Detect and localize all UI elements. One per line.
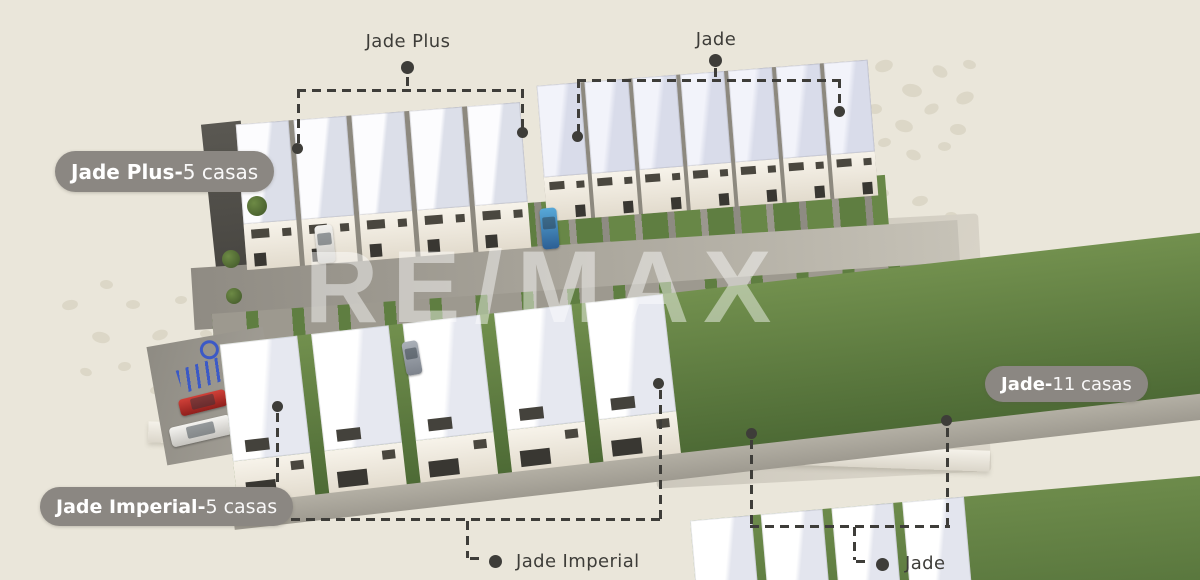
- connector-line: [853, 527, 856, 560]
- connector-dot: [709, 54, 722, 67]
- decorative-dot: [79, 367, 93, 378]
- badge-jade: Jade-11 casas: [985, 366, 1148, 402]
- decorative-dot: [901, 82, 923, 98]
- bracket-line: [659, 390, 662, 520]
- garage-door: [254, 253, 267, 267]
- badge-count: 5 casas: [205, 496, 277, 518]
- decorative-dot: [911, 194, 929, 207]
- garage-door: [814, 186, 825, 199]
- connector-dot: [834, 106, 845, 117]
- garage-door: [766, 189, 777, 202]
- decorative-dot: [118, 361, 132, 371]
- garage-door: [862, 182, 873, 195]
- bracket-line: [577, 79, 842, 82]
- callout-label-jade: Jade: [666, 29, 766, 50]
- badge-name: Jade Plus-: [71, 160, 183, 184]
- garage-door: [575, 204, 586, 217]
- connector-line: [856, 560, 871, 563]
- badge-name: Jade Imperial-: [56, 496, 205, 518]
- decorative-dot: [950, 123, 967, 135]
- house-roof: [351, 111, 412, 215]
- garage-door: [719, 193, 730, 206]
- decorative-dot: [151, 328, 169, 342]
- house: [831, 503, 907, 580]
- house: [761, 509, 837, 580]
- window: [863, 158, 872, 166]
- window: [382, 449, 396, 459]
- house-facade: [592, 170, 639, 217]
- window: [815, 162, 824, 170]
- badge-name: Jade-: [1001, 374, 1052, 395]
- house-facade: [507, 422, 589, 475]
- house-facade: [640, 167, 687, 214]
- connector-dot: [401, 61, 414, 74]
- decorative-dot: [905, 148, 923, 163]
- garage-door: [623, 201, 634, 214]
- window: [672, 173, 681, 181]
- window: [482, 210, 501, 220]
- tree: [222, 250, 240, 268]
- window: [645, 173, 661, 182]
- window: [290, 460, 304, 470]
- window: [720, 169, 729, 177]
- bracket-line: [577, 79, 580, 132]
- house-roof: [831, 503, 904, 580]
- connector-dot: [272, 401, 283, 412]
- house-roof: [776, 64, 827, 159]
- house-roof: [467, 102, 528, 206]
- connector-dot: [876, 558, 889, 571]
- decorative-dot: [894, 118, 914, 134]
- callout-label-jade-imperial: Jade Imperial: [516, 551, 640, 572]
- badge-jade-plus: Jade Plus-5 casas: [55, 151, 274, 192]
- window: [741, 166, 757, 175]
- marketing-render-page: RE/MAX Jade Plus Jade Jade Imperial Jade…: [0, 0, 1200, 580]
- connector-line: [470, 557, 485, 560]
- house-roof: [761, 509, 834, 580]
- house-facade: [735, 159, 782, 206]
- connector-dot: [941, 415, 952, 426]
- white-car: [168, 414, 233, 447]
- bracket-line: [946, 428, 949, 527]
- house: [728, 67, 783, 206]
- badge-count: 11 casas: [1052, 374, 1131, 395]
- decorative-dot: [923, 101, 941, 116]
- house-roof: [537, 82, 588, 177]
- tree: [247, 196, 267, 216]
- badge-jade-imperial: Jade Imperial-5 casas: [40, 487, 293, 526]
- house: [537, 82, 592, 221]
- decorative-dot: [954, 89, 975, 106]
- decorative-dot: [962, 59, 977, 71]
- bracket-line: [750, 440, 753, 528]
- window: [788, 162, 804, 171]
- tree: [226, 288, 242, 304]
- connector-line: [466, 521, 469, 558]
- connector-dot: [489, 555, 502, 568]
- house-facade: [416, 432, 498, 485]
- bracket-line: [521, 89, 524, 129]
- house: [632, 75, 687, 214]
- decorative-dot: [91, 330, 111, 345]
- garage-door: [428, 458, 460, 477]
- remax-watermark: RE/MAX: [275, 222, 815, 352]
- bracket-line: [838, 79, 841, 108]
- decorative-dot: [930, 63, 949, 81]
- bracket-line: [297, 89, 524, 92]
- house-facade: [599, 411, 681, 464]
- callout-label-jade-bottom: Jade: [905, 553, 945, 574]
- decorative-dot: [126, 300, 140, 309]
- connector-dot: [292, 143, 303, 154]
- garage-door: [337, 469, 369, 488]
- garage-door: [520, 448, 552, 467]
- connector-dot: [653, 378, 664, 389]
- house: [220, 336, 316, 506]
- decorative-dot: [175, 295, 188, 304]
- window: [768, 165, 777, 173]
- window: [549, 181, 565, 190]
- decorative-dot: [938, 142, 951, 151]
- house: [584, 79, 639, 218]
- house-roof: [409, 107, 470, 211]
- connector-dot: [572, 131, 583, 142]
- callout-label-jade-plus: Jade Plus: [340, 31, 476, 52]
- house-facade: [831, 151, 878, 198]
- group-jade-top: [537, 60, 879, 222]
- house-roof: [220, 336, 311, 462]
- garage-door: [611, 437, 643, 456]
- connector-dot: [517, 127, 528, 138]
- decorative-dot: [100, 279, 114, 289]
- bracket-line: [297, 89, 300, 143]
- window: [597, 177, 613, 186]
- window: [565, 428, 579, 438]
- window: [473, 439, 487, 449]
- bracket-line: [750, 525, 950, 528]
- house-facade: [324, 442, 406, 495]
- bracket-line: [276, 518, 662, 521]
- house-roof: [584, 79, 635, 174]
- connector-dot: [746, 428, 757, 439]
- house-facade: [687, 163, 734, 210]
- window: [836, 158, 852, 167]
- window: [693, 170, 709, 179]
- window: [576, 180, 585, 188]
- garage-door: [671, 197, 682, 210]
- house-roof: [632, 75, 683, 170]
- house-roof: [824, 60, 875, 155]
- window: [624, 177, 633, 185]
- window: [251, 228, 270, 238]
- badge-count: 5 casas: [183, 160, 258, 184]
- house: [776, 64, 831, 203]
- house-roof: [680, 71, 731, 166]
- house-roof: [294, 116, 355, 220]
- window: [513, 209, 523, 218]
- decorative-dot: [61, 299, 78, 312]
- house-facade: [783, 155, 830, 202]
- house: [680, 71, 735, 210]
